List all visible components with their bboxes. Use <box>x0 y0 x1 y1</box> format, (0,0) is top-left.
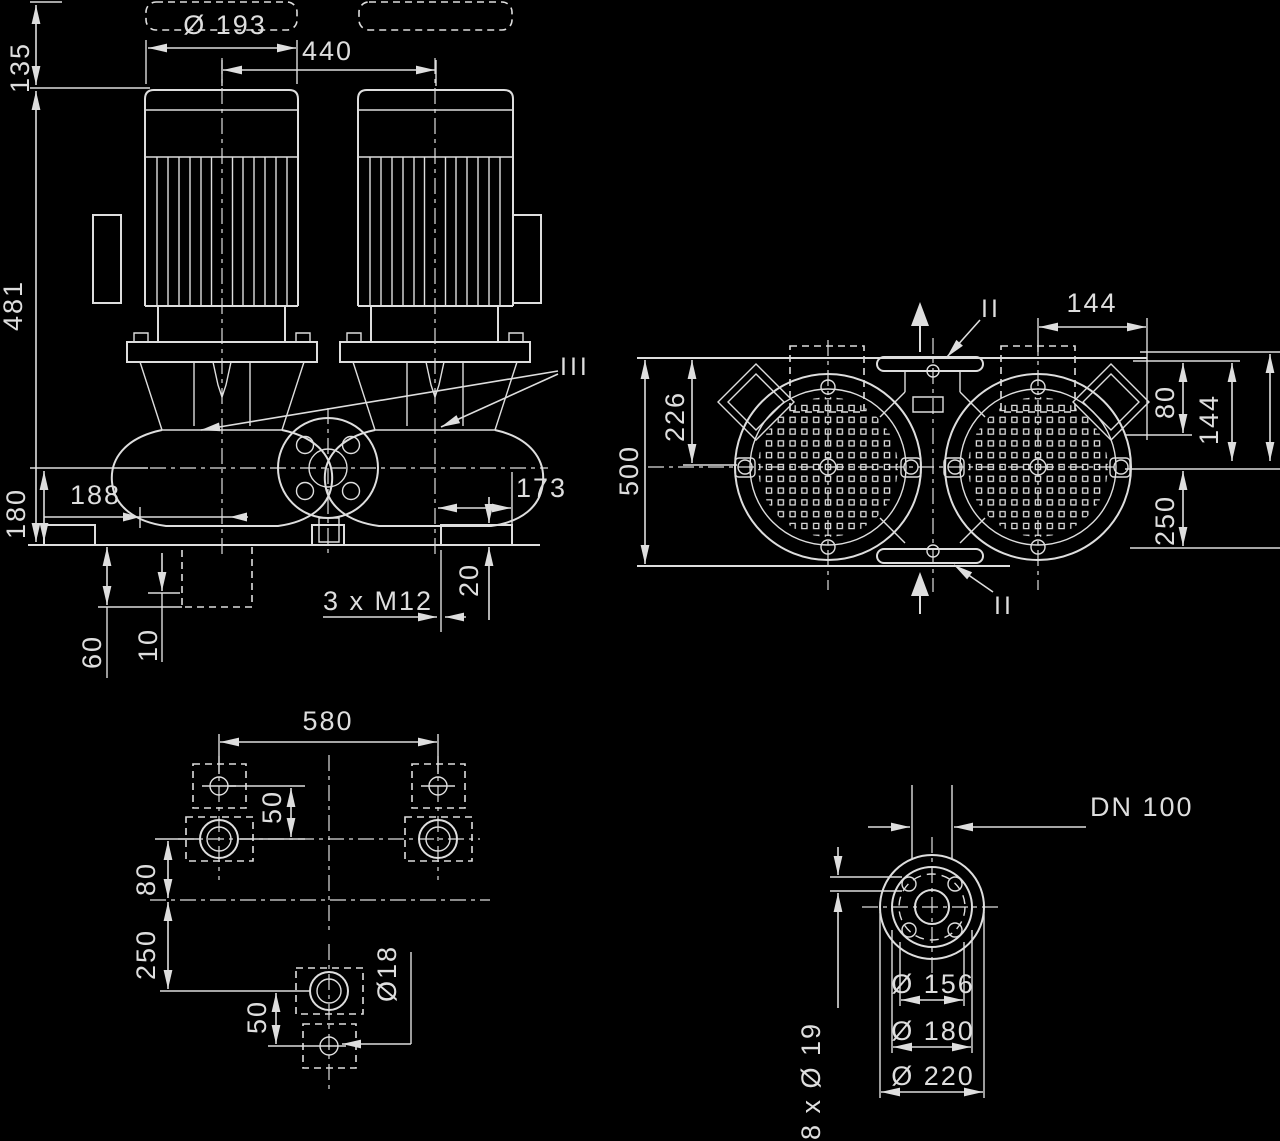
dim-144-right-label: 144 <box>1194 394 1224 445</box>
section-marker-ii-bottom: II <box>994 592 1014 620</box>
dim-outer-diameter-label: Ø 220 <box>891 1061 975 1091</box>
suction-pipe-bottom <box>877 518 985 563</box>
dim-135-label: 135 <box>5 42 35 93</box>
dim-bolt-holes-label: 8 x Ø 19 <box>796 1022 826 1140</box>
volute-right <box>325 430 543 526</box>
fan-cover-right <box>944 340 1131 590</box>
motor-right <box>340 58 541 556</box>
dim-80-foundation-label: 80 <box>131 862 161 896</box>
dim-250-plan-label: 250 <box>1150 495 1180 546</box>
dim-173-label: 173 <box>516 473 567 503</box>
dim-144-top-label: 144 <box>1066 288 1117 318</box>
dim-250-foundation-label: 250 <box>131 929 161 980</box>
dim-60-label: 60 <box>77 635 107 669</box>
dim-180-label: 180 <box>1 488 31 539</box>
motor-left <box>93 58 317 556</box>
dim-20-label: 20 <box>454 563 484 597</box>
dim-bolt-circle-label: Ø 156 <box>891 969 975 999</box>
section-marker-iii: III <box>560 353 590 381</box>
drain-plug <box>319 518 339 542</box>
section-marker-ii-top: II <box>981 295 1001 323</box>
discharge-pipe-top <box>877 357 985 417</box>
dim-500-label: 500 <box>614 445 644 496</box>
terminal-box-side-right <box>513 215 541 303</box>
label-dn100: DN 100 <box>1090 792 1194 822</box>
foundation-plan-view: 580 <box>131 706 490 1092</box>
suction-port-dashed <box>182 545 252 607</box>
dim-3xm12-label: 3 x M12 <box>323 586 433 616</box>
dim-580-label: 580 <box>302 706 353 736</box>
terminal-box-dashed-right <box>359 2 512 30</box>
suction-flange-front <box>278 408 378 556</box>
dim-motor-diameter-label: Ø 193 <box>183 10 267 40</box>
front-elevation-view: 135 481 180 Ø 193 440 188 173 20 3 x M12 <box>0 2 590 678</box>
dim-50-top-label: 50 <box>257 790 287 824</box>
dim-hole-diameter-label: Ø18 <box>372 945 402 1002</box>
dim-50-bottom-label: 50 <box>242 1000 272 1034</box>
flow-arrow-bottom-icon <box>911 572 929 614</box>
dim-481-label: 481 <box>0 280 28 331</box>
dim-188-label: 188 <box>70 480 121 510</box>
fan-cover-left <box>735 340 921 590</box>
technical-drawing-canvas: 135 481 180 Ø 193 440 188 173 20 3 x M12 <box>0 0 1280 1141</box>
flange-face <box>862 837 1002 977</box>
dim-226-label: 226 <box>660 391 690 442</box>
pump-feet <box>28 525 540 545</box>
dim-80-plan-label: 80 <box>1150 385 1180 419</box>
pump-dimension-drawing: 135 481 180 Ø 193 440 188 173 20 3 x M12 <box>0 0 1280 1141</box>
dim-440-label: 440 <box>302 36 353 66</box>
plan-view: II II 500 226 144 80 144 250 <box>614 288 1280 620</box>
dim-raised-face-label: Ø 180 <box>891 1016 975 1046</box>
flange-detail-view: DN 100 8 x Ø 19 Ø 156 Ø 180 Ø 220 <box>796 785 1194 1140</box>
dim-10-label: 10 <box>133 628 163 662</box>
terminal-box-side-left <box>93 215 121 303</box>
flow-arrow-top-icon <box>911 302 929 352</box>
